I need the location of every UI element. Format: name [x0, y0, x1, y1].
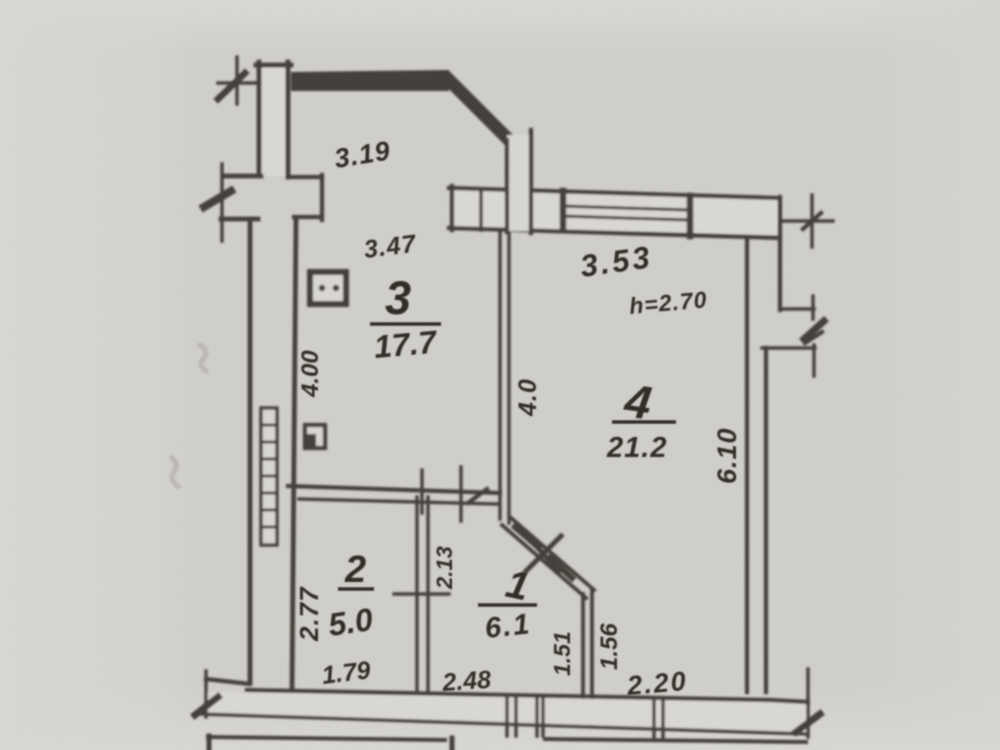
svg-text:2.77: 2.77	[294, 586, 324, 642]
svg-text:1.51: 1.51	[549, 631, 575, 676]
svg-text:6.10: 6.10	[712, 427, 742, 484]
svg-text:2.20: 2.20	[625, 666, 689, 701]
svg-text:2.48: 2.48	[440, 666, 492, 697]
svg-text:4.0: 4.0	[514, 378, 542, 417]
svg-text:2: 2	[344, 549, 366, 591]
svg-text:1.79: 1.79	[320, 656, 372, 690]
svg-text:5.0: 5.0	[326, 601, 375, 643]
svg-text:6.1: 6.1	[483, 608, 532, 645]
svg-text:1.56: 1.56	[596, 623, 623, 670]
svg-text:4.00: 4.00	[297, 350, 324, 398]
svg-text:21.2: 21.2	[606, 432, 667, 464]
svg-text:3: 3	[385, 271, 411, 324]
svg-text:17.7: 17.7	[372, 323, 439, 364]
svg-text:2.13: 2.13	[432, 546, 457, 590]
